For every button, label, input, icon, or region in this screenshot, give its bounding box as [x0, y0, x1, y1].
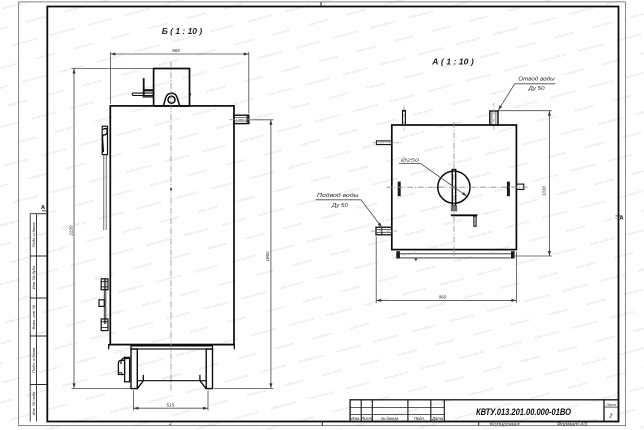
- svg-text:515: 515: [167, 402, 175, 408]
- svg-text:Изм.: Изм.: [351, 416, 360, 421]
- svg-text:Подп.: Подп.: [414, 416, 425, 421]
- svg-text:Подвод воды: Подвод воды: [317, 193, 359, 199]
- svg-text:Б ( 1 : 10 ): Б ( 1 : 10 ): [162, 27, 203, 36]
- svg-text:Инв. № подл.: Инв. № подл.: [31, 391, 36, 416]
- svg-text:Ду 50: Ду 50: [527, 86, 544, 92]
- svg-text:960: 960: [439, 294, 447, 300]
- svg-text:Ду 50: Ду 50: [331, 203, 348, 209]
- svg-text:А: А: [41, 205, 45, 211]
- svg-text:Инв. № дубл.: Инв. № дубл.: [31, 265, 36, 290]
- svg-text:1860: 1860: [265, 251, 271, 261]
- svg-text:Лист: Лист: [605, 402, 617, 407]
- svg-text:Подп. и дата: Подп. и дата: [31, 222, 36, 248]
- svg-text:КВТУ.013.201.00.000-01ВО: КВТУ.013.201.00.000-01ВО: [476, 407, 571, 417]
- svg-text:2220: 2220: [68, 225, 74, 236]
- svg-text:Ø250: Ø250: [399, 158, 419, 164]
- svg-text:2: 2: [168, 421, 172, 426]
- svg-text:Лист: Лист: [360, 416, 372, 421]
- svg-text:Копировал: Копировал: [490, 422, 521, 427]
- svg-text:Подп. и дата: Подп. и дата: [31, 347, 36, 373]
- svg-text:Формат А3: Формат А3: [557, 422, 588, 427]
- svg-text:А: А: [619, 216, 623, 222]
- svg-text:Дата: Дата: [431, 416, 444, 421]
- svg-text:Отвод воды: Отвод воды: [518, 77, 555, 83]
- svg-text:Взам. инв. №: Взам. инв. №: [31, 304, 36, 329]
- svg-text:1030: 1030: [541, 186, 547, 196]
- svg-text:865: 865: [172, 48, 180, 54]
- svg-text:А ( 1 : 10 ): А ( 1 : 10 ): [431, 58, 474, 67]
- svg-text:№ докум.: № докум.: [381, 416, 399, 421]
